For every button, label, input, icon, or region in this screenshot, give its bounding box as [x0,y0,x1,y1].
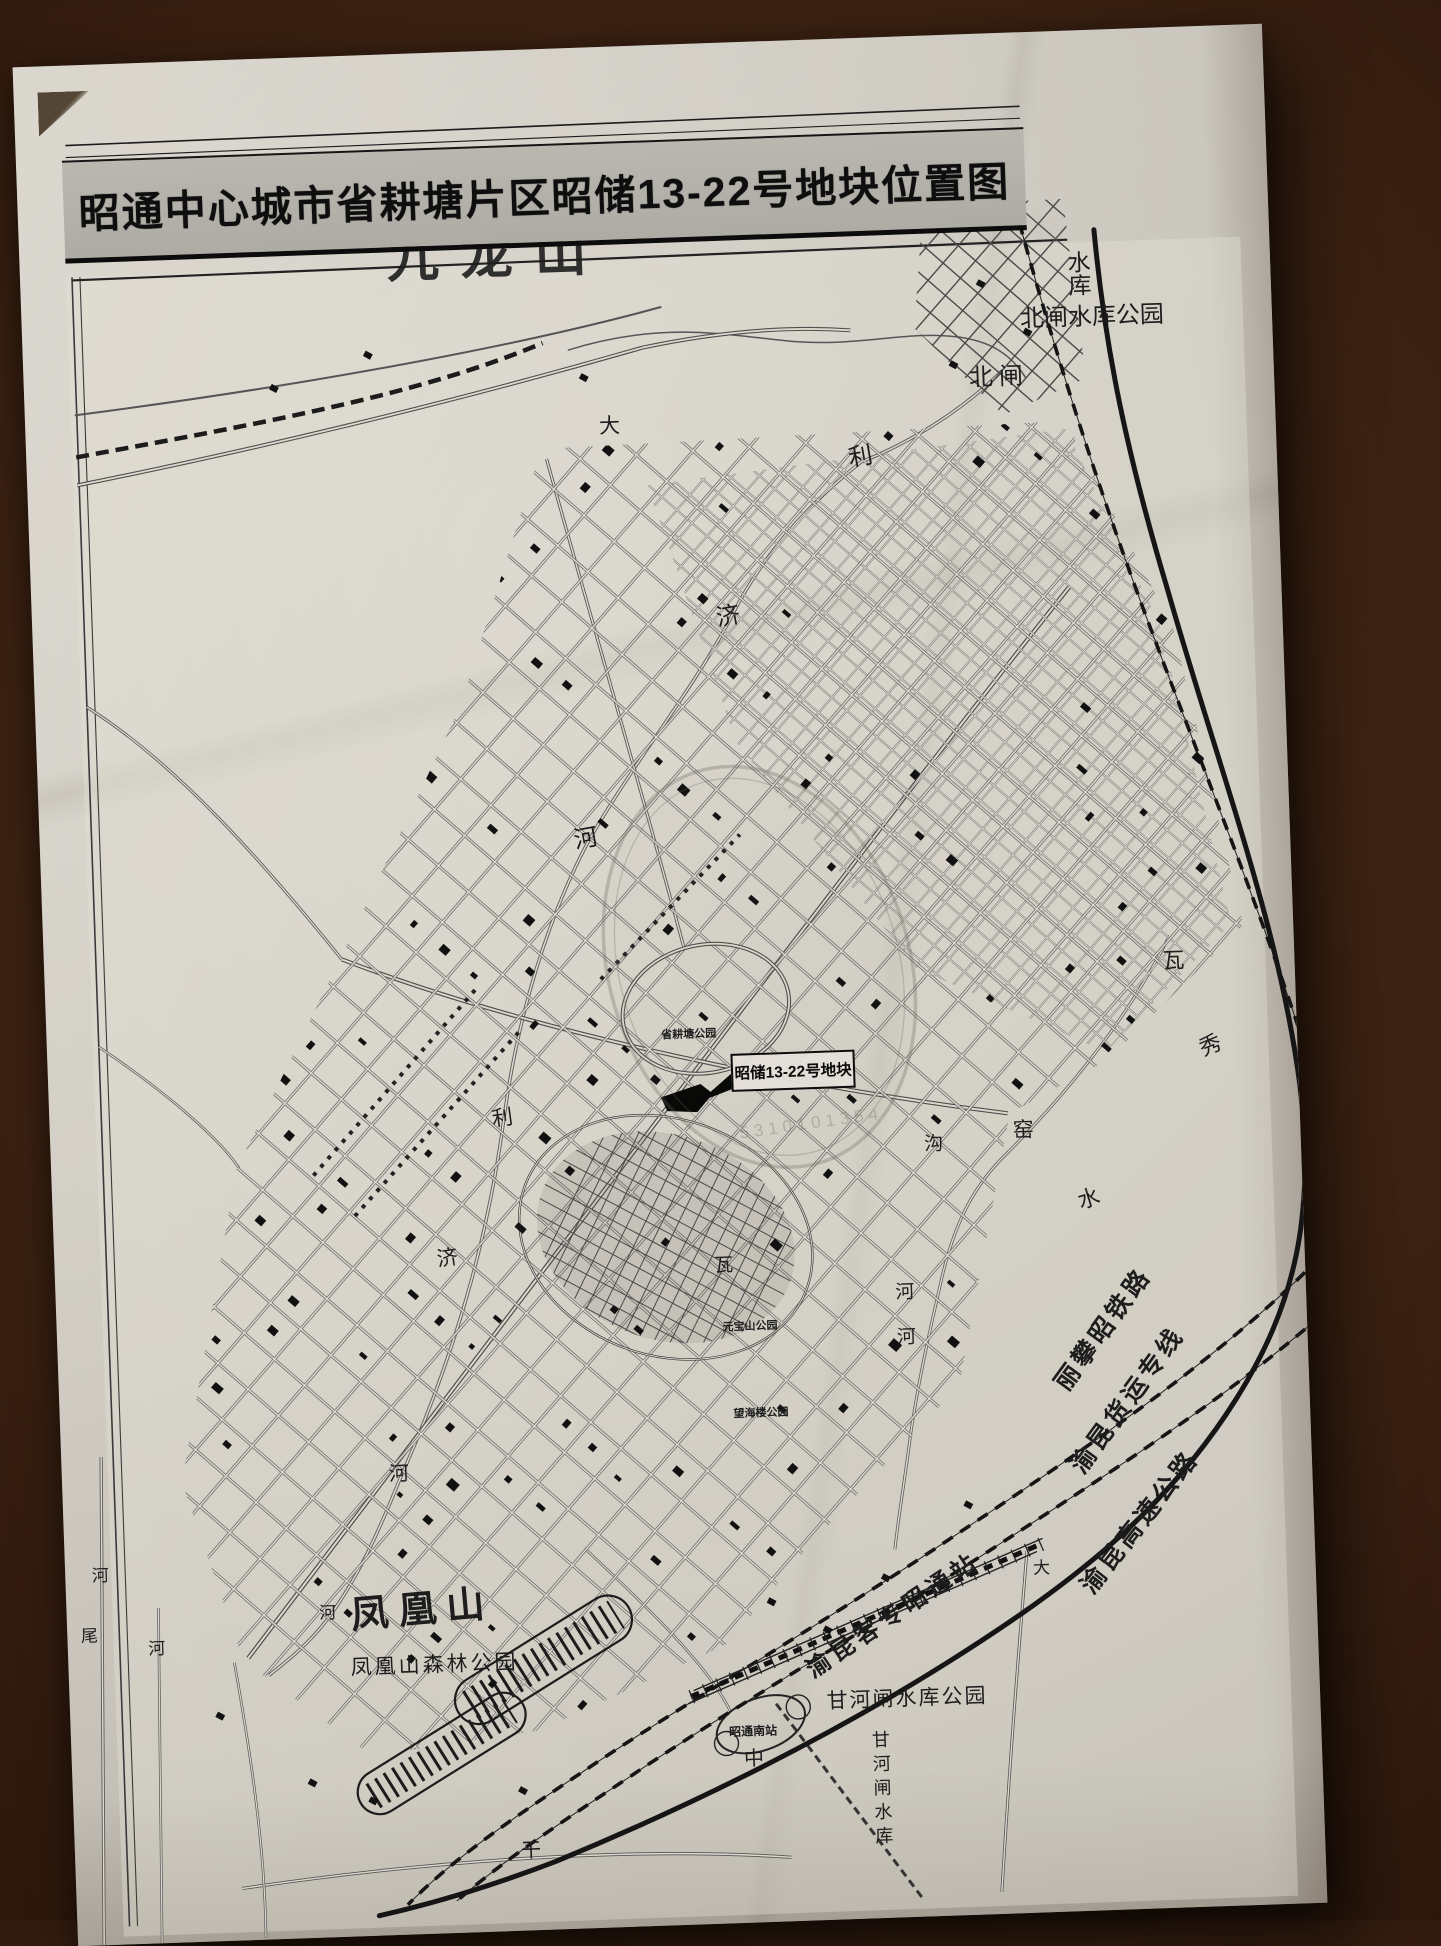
photo-background: 5310101354 昭通中心城市省耕塘片区昭储13-22号地块位置图 昭储13… [0,0,1441,1920]
map-canvas: 5310101354 [13,24,1328,1946]
map-title: 昭通中心城市省耕塘片区昭储13-22号地块位置图 [78,148,1011,240]
map-paper-sheet: 5310101354 昭通中心城市省耕塘片区昭储13-22号地块位置图 昭储13… [13,24,1328,1946]
